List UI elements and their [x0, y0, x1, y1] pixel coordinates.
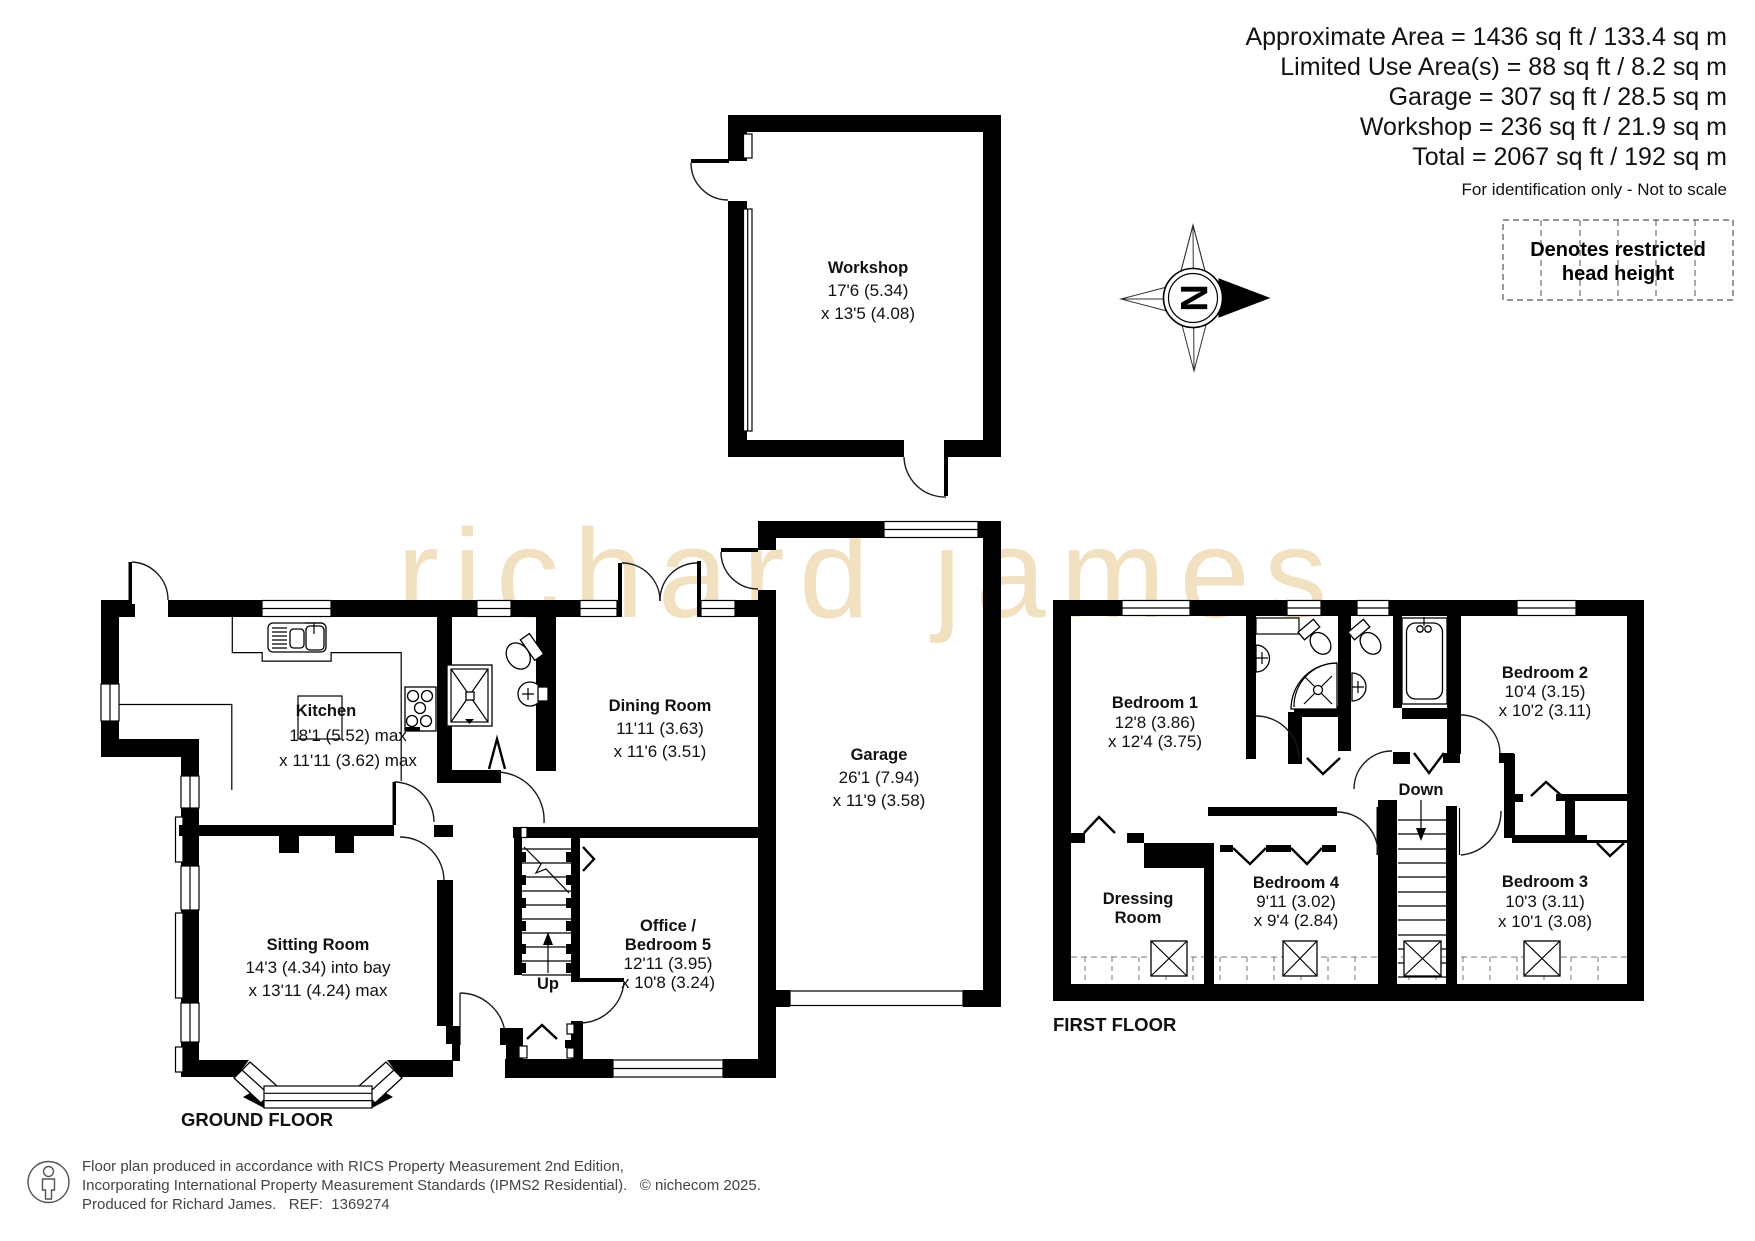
svg-text:For identification only - Not: For identification only - Not to scale: [1461, 180, 1727, 199]
svg-text:Bedroom 4: Bedroom 4: [1253, 874, 1340, 892]
svg-text:x 13'5 (4.08): x 13'5 (4.08): [821, 304, 915, 323]
svg-text:x 13'11 (4.24) max: x 13'11 (4.24) max: [249, 981, 388, 1000]
svg-text:Bedroom 2: Bedroom 2: [1502, 664, 1588, 682]
svg-text:Denotes restricted: Denotes restricted: [1530, 239, 1706, 261]
svg-text:Workshop = 236 sq ft / 21.9 sq: Workshop = 236 sq ft / 21.9 sq m: [1360, 113, 1727, 141]
svg-text:12'11 (3.95): 12'11 (3.95): [624, 954, 713, 973]
svg-text:Bedroom 1: Bedroom 1: [1112, 694, 1198, 712]
svg-text:Workshop: Workshop: [828, 259, 908, 277]
svg-text:Approximate Area = 1436 sq ft: Approximate Area = 1436 sq ft / 133.4 sq…: [1245, 23, 1727, 51]
svg-text:Dressing: Dressing: [1103, 890, 1174, 908]
svg-text:x 10'8 (3.24): x 10'8 (3.24): [621, 973, 715, 992]
svg-text:14'3 (4.34) into bay: 14'3 (4.34) into bay: [245, 958, 391, 977]
svg-text:N: N: [1172, 284, 1214, 311]
svg-text:9'11 (3.02): 9'11 (3.02): [1256, 892, 1335, 911]
svg-text:x 11'11 (3.62) max: x 11'11 (3.62) max: [279, 751, 417, 770]
svg-text:18'1 (5.52) max: 18'1 (5.52) max: [289, 726, 407, 745]
svg-text:26'1 (7.94): 26'1 (7.94): [839, 768, 920, 787]
svg-text:12'8 (3.86): 12'8 (3.86): [1115, 713, 1196, 732]
svg-text:Produced for Richard James.: Produced for Richard James. REF: 1369274: [82, 1196, 390, 1213]
svg-text:17'6 (5.34): 17'6 (5.34): [828, 281, 909, 300]
svg-text:Kitchen: Kitchen: [296, 702, 357, 720]
svg-text:11'11 (3.63): 11'11 (3.63): [616, 719, 704, 738]
svg-text:Incorporating International Pr: Incorporating International Property Mea…: [82, 1177, 761, 1194]
svg-text:Bedroom 3: Bedroom 3: [1502, 873, 1588, 891]
svg-text:Garage = 307 sq ft / 28.5 sq m: Garage = 307 sq ft / 28.5 sq m: [1389, 83, 1727, 111]
svg-text:Garage: Garage: [851, 746, 908, 764]
svg-text:10'3 (3.11): 10'3 (3.11): [1505, 892, 1584, 911]
svg-text:Dining Room: Dining Room: [609, 697, 712, 715]
svg-text:x 10'2 (3.11): x 10'2 (3.11): [1499, 701, 1592, 720]
svg-text:Total = 2067 sq ft / 192 sq m: Total = 2067 sq ft / 192 sq m: [1412, 143, 1727, 171]
svg-text:Limited Use Area(s) = 88 sq ft: Limited Use Area(s) = 88 sq ft / 8.2 sq …: [1280, 53, 1727, 81]
svg-text:Up: Up: [537, 975, 559, 993]
svg-text:x 12'4 (3.75): x 12'4 (3.75): [1108, 732, 1202, 751]
svg-text:10'4 (3.15): 10'4 (3.15): [1505, 682, 1586, 701]
svg-text:x 11'9 (3.58): x 11'9 (3.58): [833, 791, 926, 810]
svg-text:Down: Down: [1399, 781, 1444, 799]
svg-text:Room: Room: [1115, 909, 1162, 927]
svg-text:Sitting Room: Sitting Room: [267, 936, 370, 954]
svg-text:FIRST FLOOR: FIRST FLOOR: [1053, 1014, 1176, 1035]
svg-text:GROUND FLOOR: GROUND FLOOR: [181, 1109, 333, 1130]
svg-text:Bedroom 5: Bedroom 5: [625, 936, 711, 954]
svg-text:Office /: Office /: [640, 917, 696, 935]
svg-text:x 10'1 (3.08): x 10'1 (3.08): [1498, 912, 1592, 931]
svg-text:head height: head height: [1562, 263, 1675, 285]
svg-text:x 11'6 (3.51): x 11'6 (3.51): [614, 742, 707, 761]
svg-text:Floor plan produced in accorda: Floor plan produced in accordance with R…: [82, 1158, 624, 1175]
svg-text:x 9'4 (2.84): x 9'4 (2.84): [1254, 911, 1339, 930]
